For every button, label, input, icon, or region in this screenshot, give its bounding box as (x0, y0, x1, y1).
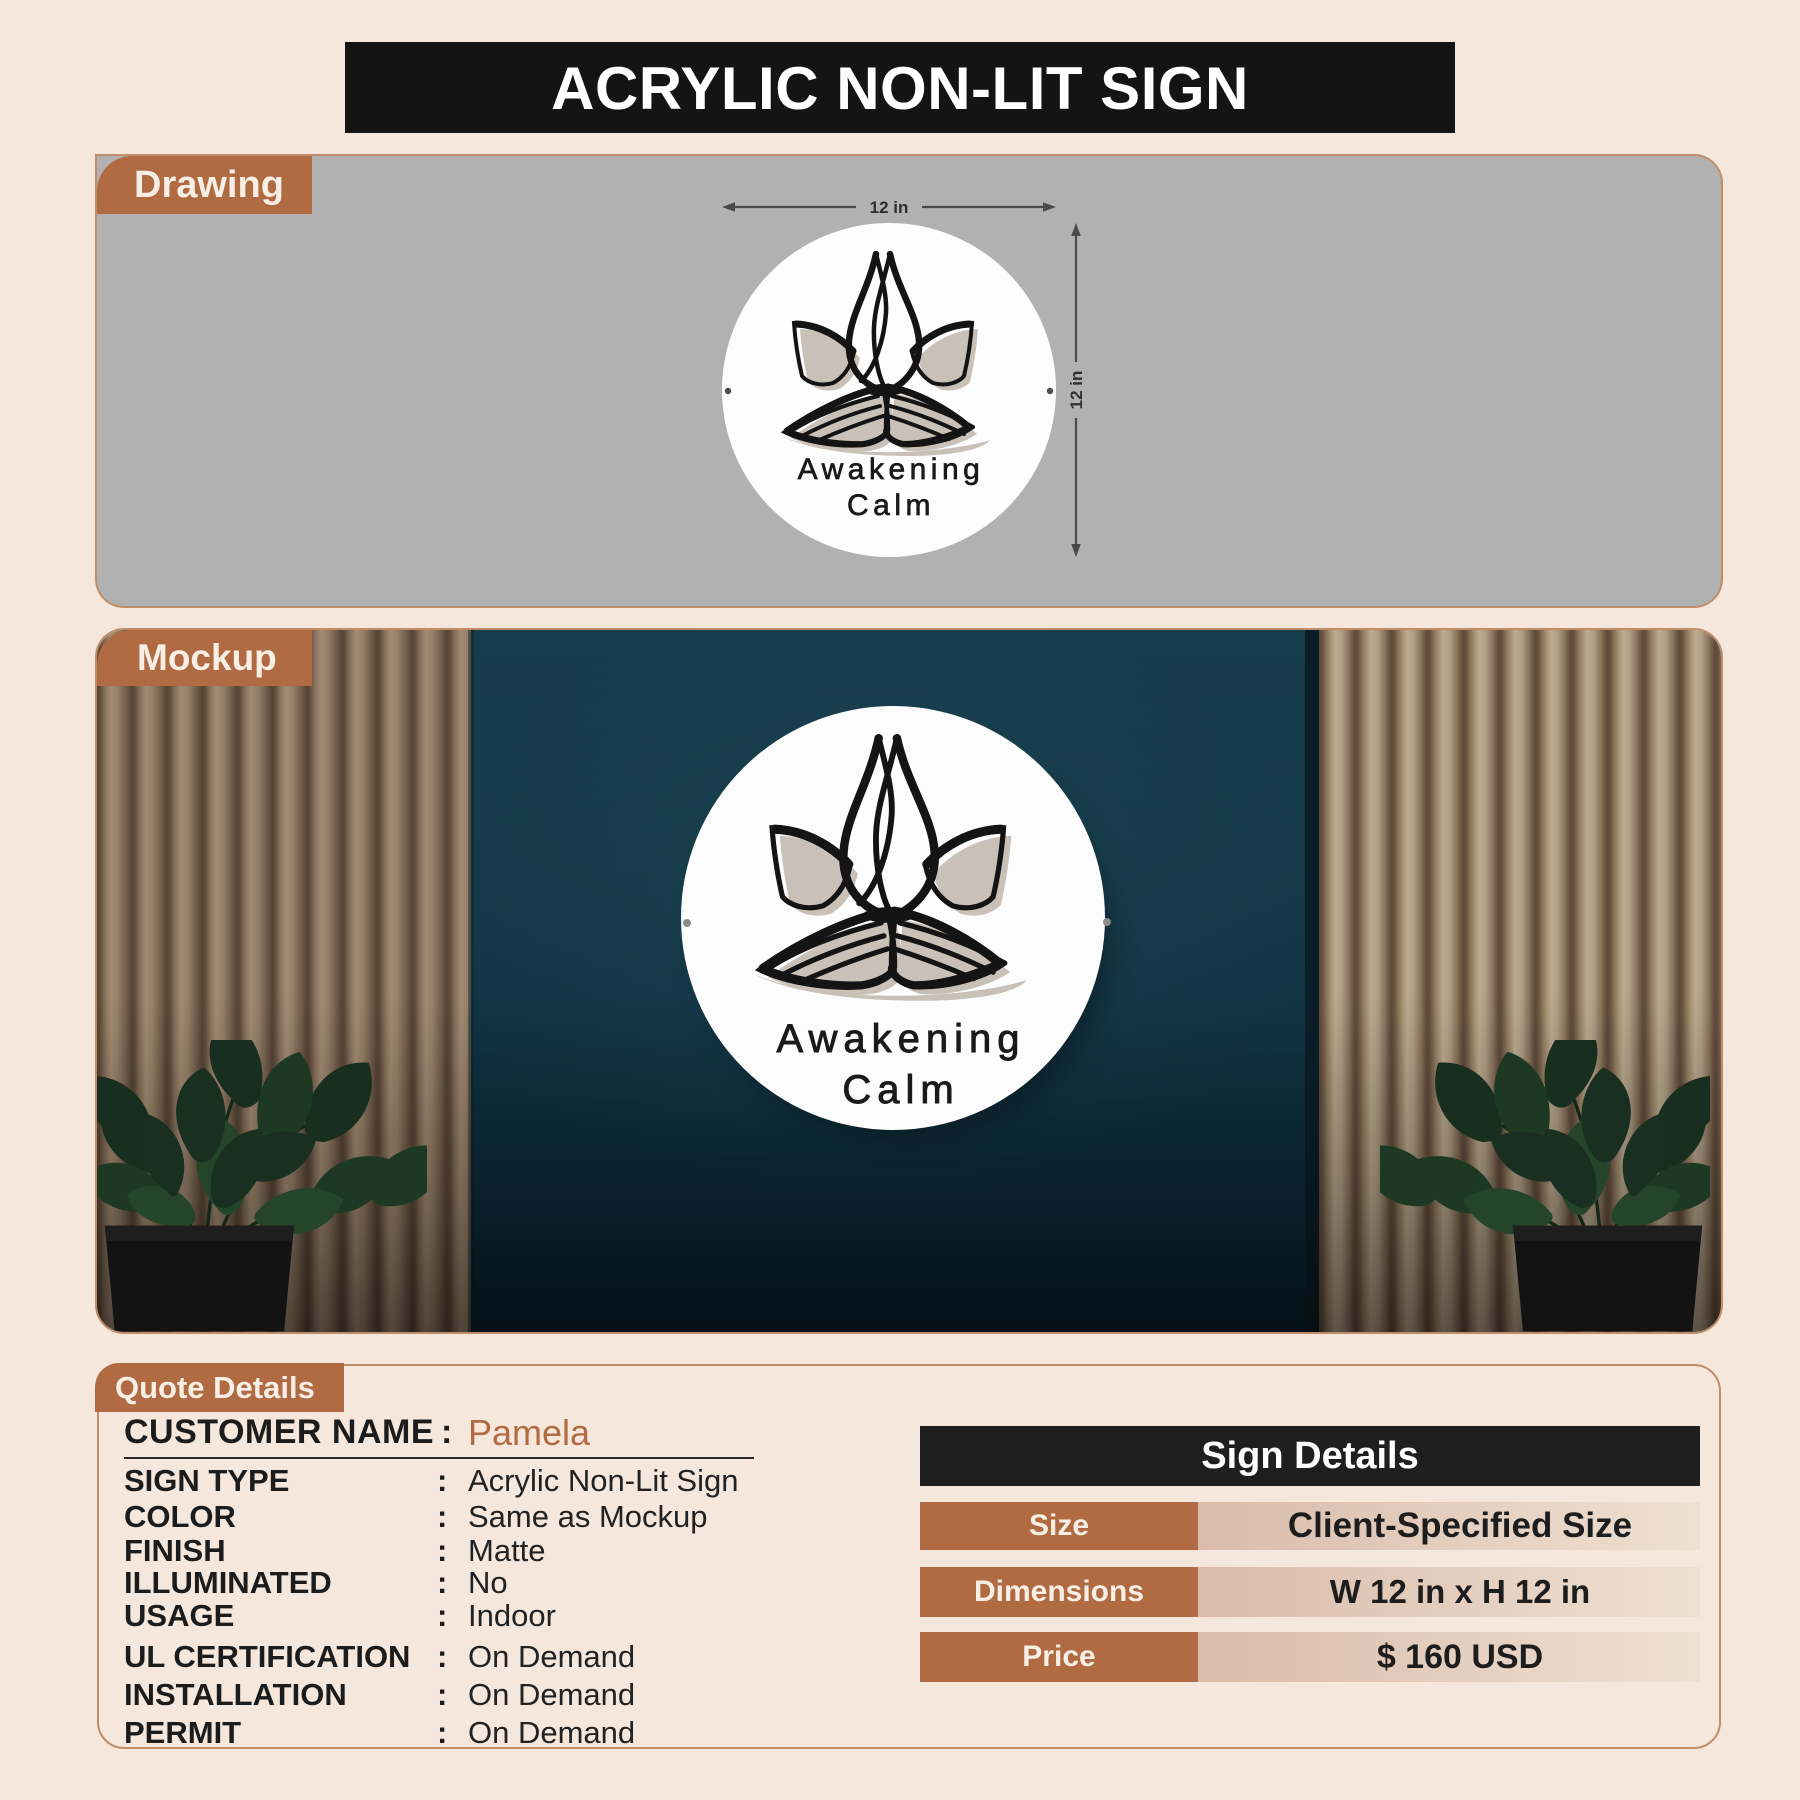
svg-text:Calm: Calm (842, 1068, 959, 1112)
svg-text:Awakening: Awakening (798, 453, 985, 486)
svg-text:Calm: Calm (847, 489, 935, 522)
svg-text:Awakening: Awakening (777, 1017, 1026, 1061)
svg-text:12 in: 12 in (870, 198, 909, 217)
svg-text:12 in: 12 in (1067, 371, 1086, 410)
